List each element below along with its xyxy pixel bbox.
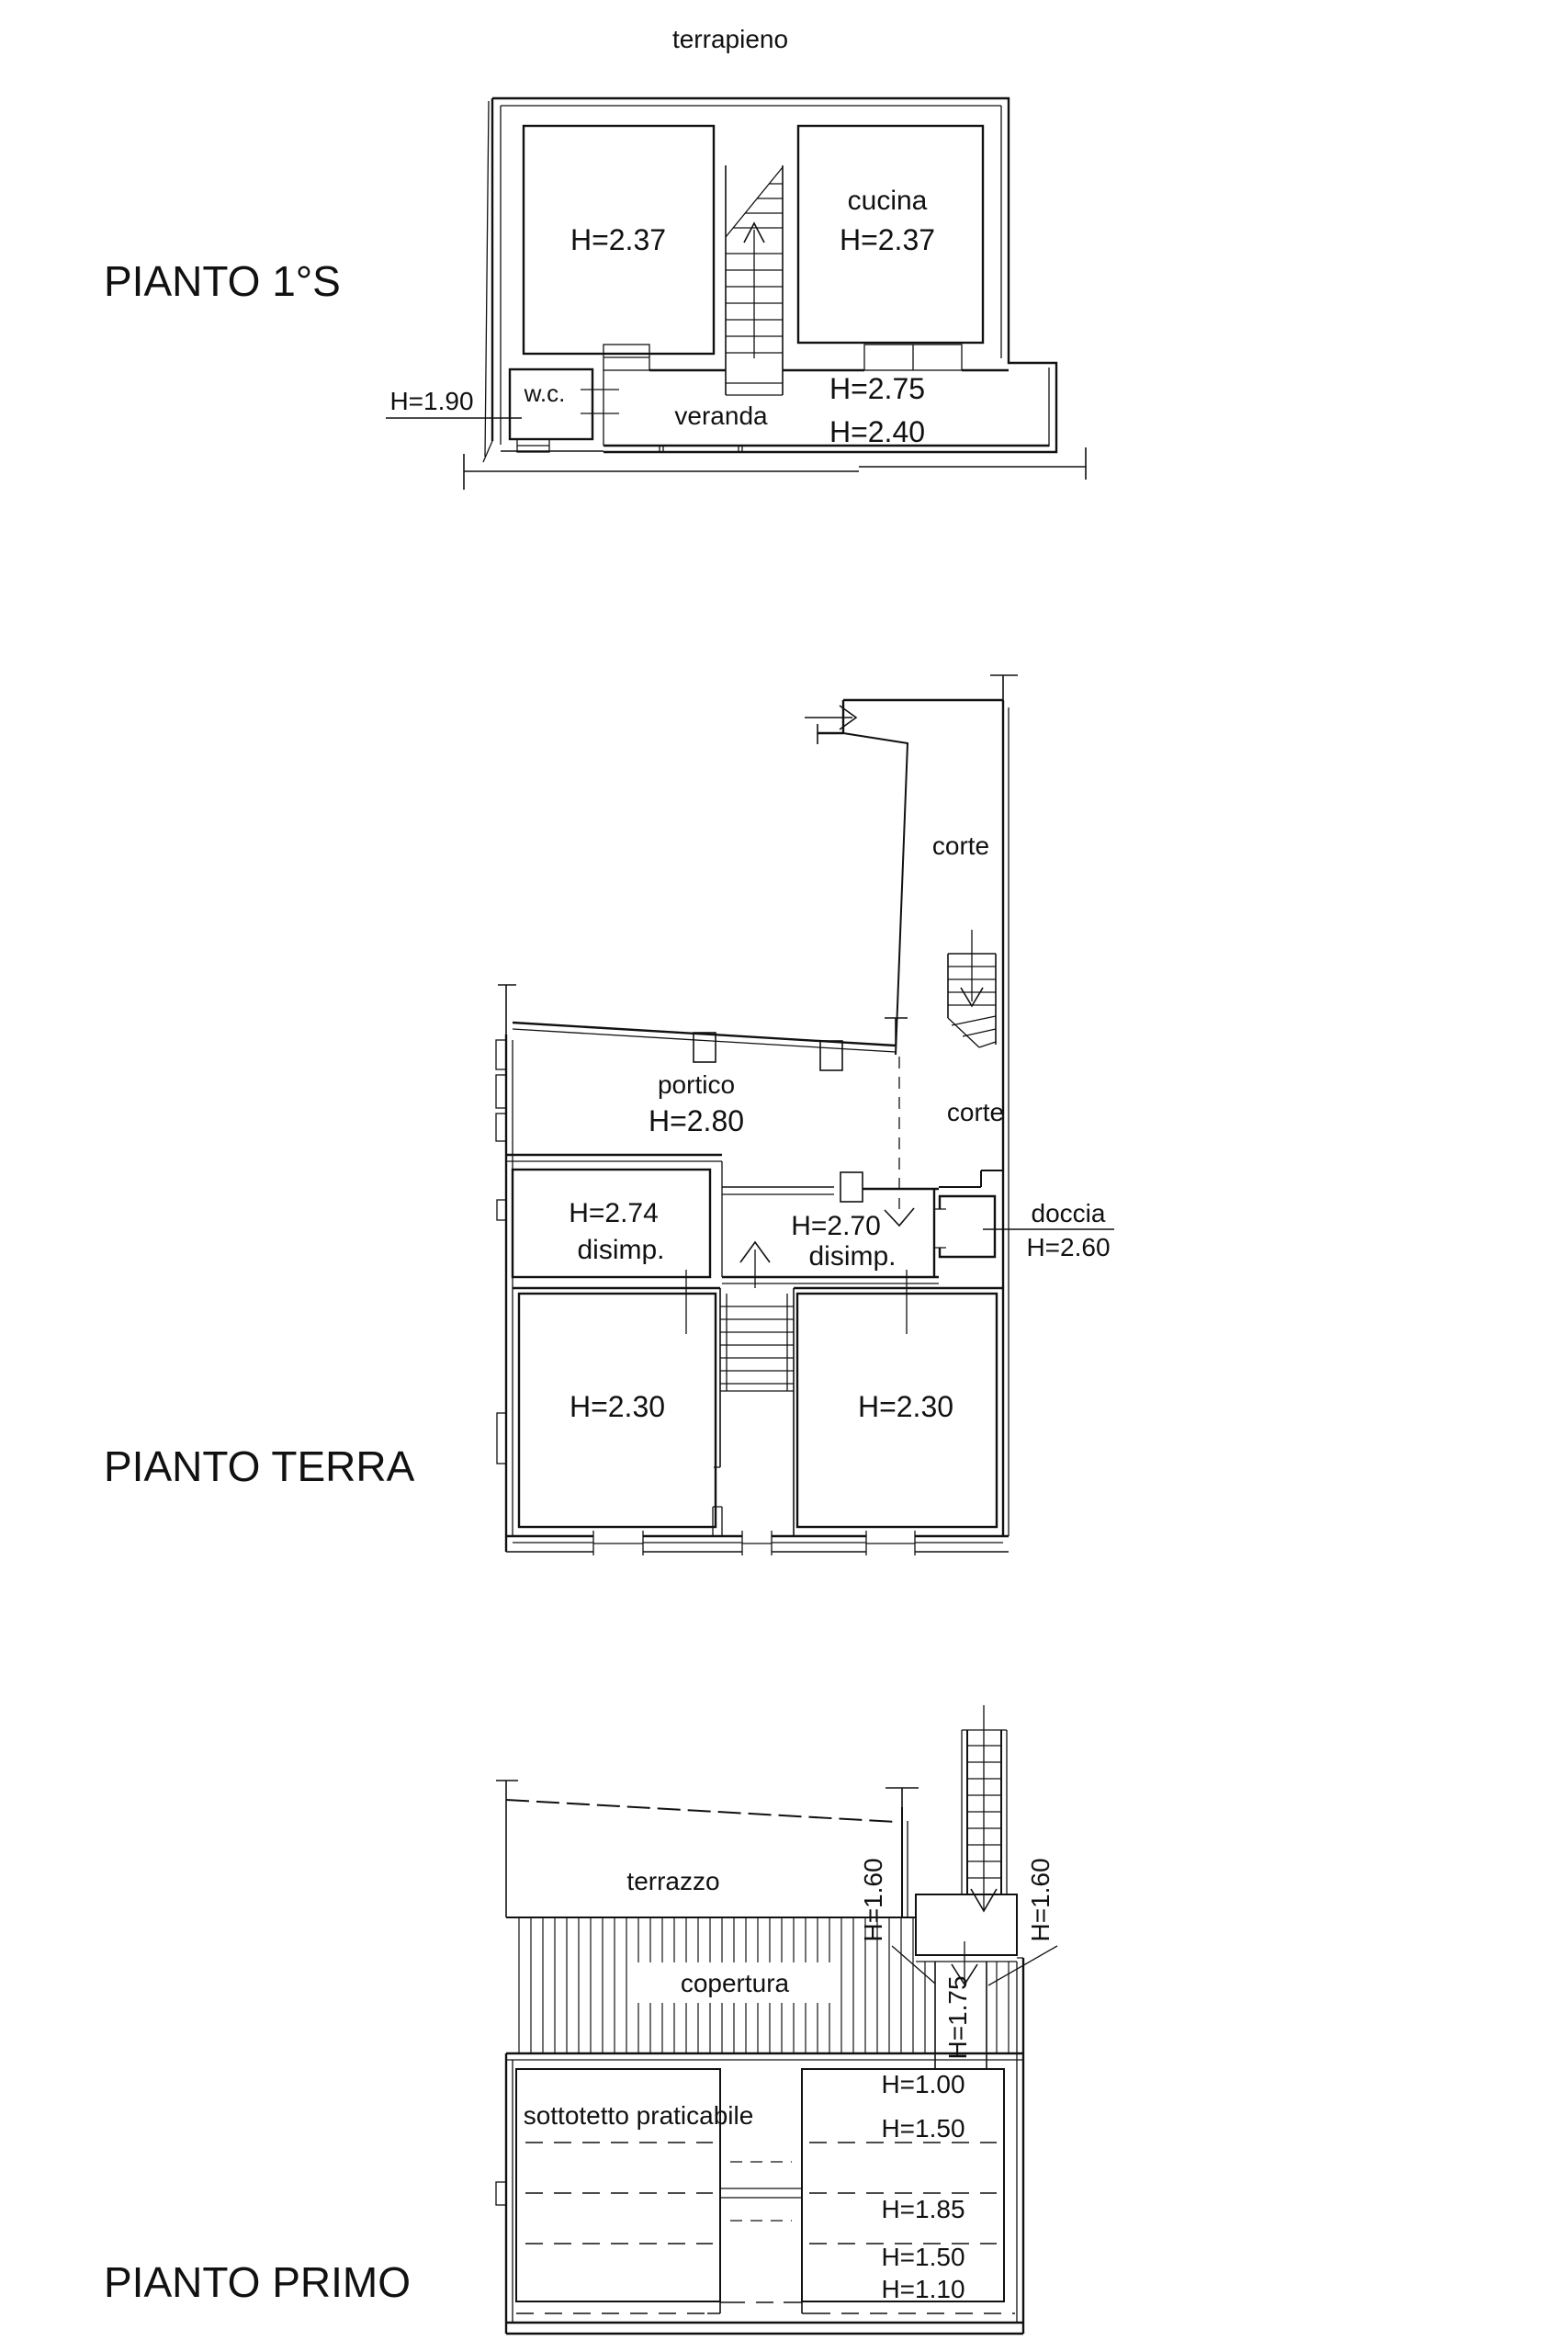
floor-plan-pianto-1s: terrapieno PIANTO 1°S H=2.37 cucina H=2.… <box>104 25 1086 490</box>
floorplan-page: terrapieno PIANTO 1°S H=2.37 cucina H=2.… <box>0 0 1568 2352</box>
label-veranda-height-1: H=2.75 <box>829 372 925 405</box>
label-corridor-height: H=1.75 <box>943 1975 972 2059</box>
label-disimp1-height: H=2.74 <box>569 1198 659 1228</box>
stairs-up <box>726 165 783 395</box>
label-sottotetto: sottotetto praticabile <box>524 2101 754 2130</box>
ground-line <box>464 447 1086 490</box>
label-stair-height-left: H=1.60 <box>859 1858 887 1941</box>
label-h110: H=1.10 <box>881 2275 964 2303</box>
arrow-down-icon <box>885 1208 914 1226</box>
label-doccia-height: H=2.60 <box>1026 1233 1110 1261</box>
label-portico-height: H=2.80 <box>649 1104 744 1137</box>
label-disimp2: disimp. <box>808 1241 896 1272</box>
label-terrazzo: terrazzo <box>626 1867 719 1895</box>
plan-title-primo: PIANTO PRIMO <box>104 2258 411 2306</box>
label-wc: w.c. <box>524 379 566 407</box>
label-veranda: veranda <box>674 401 768 430</box>
label-doccia: doccia <box>1032 1199 1106 1227</box>
label-cucina: cucina <box>848 186 928 216</box>
floor-plan-pianto-terra: PIANTO TERRA corte portico H=2.80 corte … <box>104 675 1114 1555</box>
label-room-left-height: H=2.37 <box>570 223 666 256</box>
label-portico: portico <box>658 1070 735 1099</box>
label-cucina-height: H=2.37 <box>840 223 935 256</box>
floor-plan-pianto-primo: PIANTO PRIMO terrazzo H=1.60 H=1.60 H=1.… <box>104 1705 1057 2334</box>
label-h100: H=1.00 <box>881 2070 964 2098</box>
bottom-wall <box>506 1531 1009 1555</box>
terrazzo-walls <box>496 1781 919 1917</box>
outer-wall <box>492 98 1056 452</box>
label-h150-a: H=1.50 <box>881 2114 964 2143</box>
label-veranda-height-2: H=2.40 <box>829 415 925 448</box>
stairs-down-corte <box>948 930 996 1047</box>
label-room-right-height: H=2.30 <box>858 1390 953 1423</box>
label-wc-height: H=1.90 <box>389 387 473 415</box>
label-h150-b: H=1.50 <box>881 2243 964 2271</box>
floorplan-drawing: terrapieno PIANTO 1°S H=2.37 cucina H=2.… <box>0 0 1568 2352</box>
veranda-walls <box>604 370 1049 452</box>
label-terrapieno: terrapieno <box>672 25 788 53</box>
plan-title-1s: PIANTO 1°S <box>104 257 341 305</box>
stairs-central <box>713 1242 794 1536</box>
portico-wall <box>513 1018 908 1070</box>
label-h185: H=1.85 <box>881 2195 964 2223</box>
label-corte-lower: corte <box>947 1098 1004 1126</box>
label-corte-upper: corte <box>932 831 989 860</box>
terrapieno-edge-line <box>485 101 489 457</box>
plan-title-terra: PIANTO TERRA <box>104 1442 415 1490</box>
label-disimp1: disimp. <box>577 1235 664 1265</box>
label-disimp2-height: H=2.70 <box>791 1211 881 1241</box>
stairs-column <box>962 1705 1007 1911</box>
label-stair-height-right: H=1.60 <box>1026 1858 1055 1941</box>
label-copertura: copertura <box>681 1969 790 1997</box>
label-room-left-height: H=2.30 <box>570 1390 665 1423</box>
